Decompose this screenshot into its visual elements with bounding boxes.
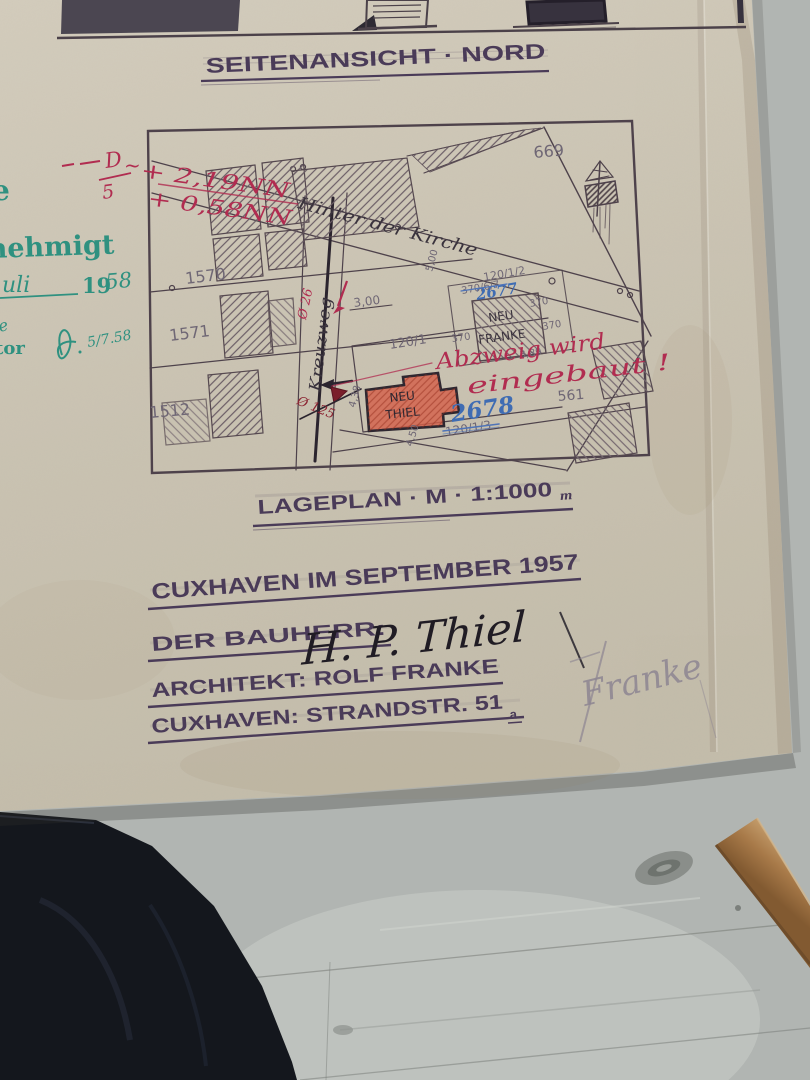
parcel-number-669: 669 bbox=[533, 140, 565, 162]
plan-caption-unit: m bbox=[559, 488, 573, 503]
building-hatched bbox=[268, 298, 296, 347]
sup-underline bbox=[508, 722, 522, 723]
parcel-number-561: 561 bbox=[557, 387, 585, 405]
stamp-frag-month: uli bbox=[2, 273, 30, 298]
elevation-post bbox=[737, 0, 744, 23]
floor-speck bbox=[735, 905, 741, 911]
stamp-signature-dot bbox=[79, 351, 82, 354]
stamp-year-written: 58 bbox=[104, 268, 133, 294]
floor-knot-small bbox=[333, 1025, 353, 1035]
building-hatched bbox=[220, 291, 273, 358]
building-hatched bbox=[208, 370, 263, 438]
label-neu-thiel-1: NEU bbox=[389, 388, 416, 405]
red-d-label: D bbox=[102, 147, 123, 173]
building-hatched bbox=[265, 229, 307, 270]
elevation-dark-block bbox=[61, 0, 240, 34]
stamp-frag-genehmigt: nehmigt bbox=[0, 230, 115, 265]
building-hatched bbox=[568, 403, 637, 463]
parcel-number-1512: 1512 bbox=[149, 400, 191, 422]
photo-of-site-plan: SEITENANSICHT · NORD bbox=[0, 0, 810, 1080]
stamp-frag-tor: tor bbox=[0, 338, 25, 359]
stamp-frag-1: e bbox=[0, 174, 10, 207]
window-opening bbox=[527, 0, 606, 24]
